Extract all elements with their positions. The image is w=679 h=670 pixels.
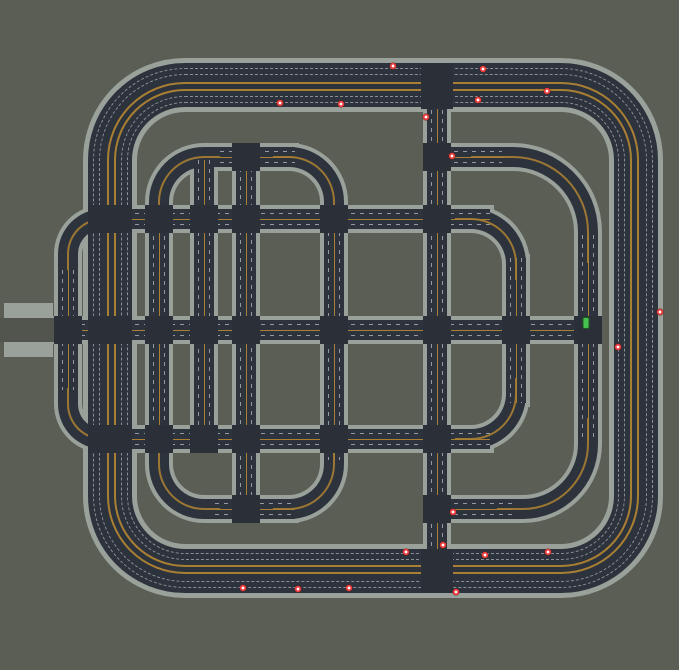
vehicle-red-9[interactable]	[657, 309, 664, 316]
vehicle-red-8[interactable]	[449, 153, 456, 160]
vehicle-red-15[interactable]	[545, 549, 552, 556]
vehicle-red-5[interactable]	[475, 97, 482, 104]
vehicle-red-10[interactable]	[615, 344, 622, 351]
vehicle-red-19[interactable]	[453, 589, 460, 596]
vehicle-red-17[interactable]	[295, 586, 302, 593]
vehicle-layer	[0, 0, 679, 670]
vehicle-red-2[interactable]	[480, 66, 487, 73]
vehicle-red-4[interactable]	[338, 101, 345, 108]
vehicle-red-16[interactable]	[240, 585, 247, 592]
simulation-map-viewport[interactable]	[0, 0, 679, 670]
vehicle-red-3[interactable]	[277, 100, 284, 107]
vehicle-red-13[interactable]	[403, 549, 410, 556]
vehicle-green[interactable]	[583, 317, 590, 329]
vehicle-red-11[interactable]	[450, 509, 457, 516]
vehicle-red-1[interactable]	[390, 63, 397, 70]
vehicle-red-6[interactable]	[544, 88, 551, 95]
vehicle-red-18[interactable]	[346, 585, 353, 592]
vehicle-red-12[interactable]	[440, 542, 447, 549]
vehicle-red-7[interactable]	[423, 114, 430, 121]
vehicle-red-14[interactable]	[482, 552, 489, 559]
